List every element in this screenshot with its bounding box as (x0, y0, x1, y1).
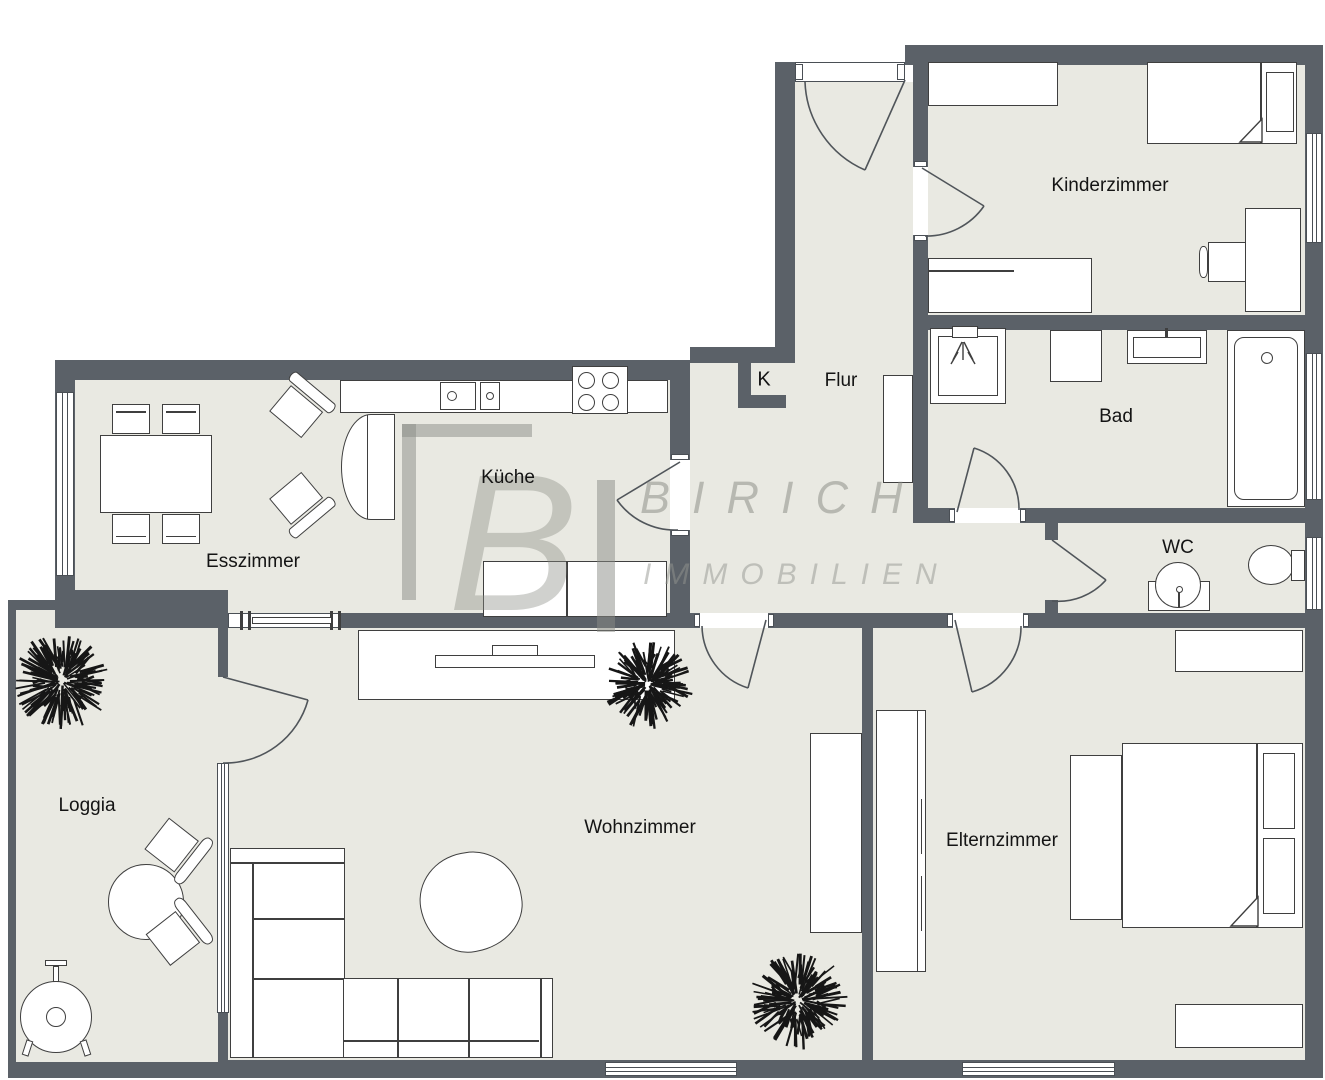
sofa-section-vertical (230, 848, 345, 1058)
wall (55, 590, 228, 628)
wall (775, 62, 795, 363)
desk (1245, 208, 1301, 312)
shelf (928, 62, 1058, 106)
floor-corridor (795, 82, 913, 363)
floor-wc (913, 523, 1305, 613)
room-label-elternzimmer: Elternzimmer (946, 830, 1058, 852)
grill-handle (45, 960, 67, 966)
cabinet (1175, 630, 1303, 672)
wall (913, 65, 928, 167)
dresser (1070, 755, 1122, 920)
door-jamb (671, 530, 689, 536)
desk-chair-back (1199, 246, 1208, 278)
curved-counter (341, 414, 395, 520)
plant (748, 950, 848, 1050)
shelf (928, 258, 1092, 313)
bathtub-drain (1261, 352, 1273, 364)
dining-chair (162, 514, 200, 544)
burner (578, 394, 595, 411)
sofa-section-horizontal (343, 978, 553, 1058)
watermark-subtitle: IMMOBILIEN (643, 558, 950, 592)
grill-center (46, 1007, 66, 1027)
window-wc (1306, 537, 1322, 610)
window-kinderzimmer (1306, 133, 1322, 243)
wall (670, 380, 690, 460)
toilet-tank (1291, 550, 1305, 581)
vanity-basin (1133, 337, 1201, 358)
door-jamb (949, 509, 955, 522)
window-esszimmer (56, 392, 74, 576)
bed-divider (1260, 62, 1262, 144)
window-elternzimmer (962, 1062, 1115, 1076)
wall (738, 395, 786, 408)
door-jamb (914, 161, 927, 167)
room-label-loggia: Loggia (58, 795, 115, 817)
glass-wall-loggia (217, 763, 229, 1013)
kitchen-sink (440, 382, 476, 410)
wall (768, 613, 953, 628)
grill-handle-stem (53, 966, 59, 982)
wc-sink-stem (1178, 592, 1180, 608)
wall (1020, 508, 1305, 523)
door-jamb (768, 614, 774, 627)
wall (1023, 613, 1305, 628)
sideboard-tall (810, 733, 862, 933)
watermark-logo-letter: B (448, 468, 578, 618)
tv-screen (435, 655, 595, 668)
pillow (1266, 72, 1294, 132)
dining-chair (112, 514, 150, 544)
burner (602, 394, 619, 411)
room-label-bad: Bad (1099, 406, 1133, 428)
dining-chair (112, 404, 150, 434)
wall (1045, 600, 1058, 613)
room-label-kinderzimmer: Kinderzimmer (1051, 175, 1168, 197)
watermark-logo-bar-right (597, 480, 615, 632)
wall (218, 1060, 1323, 1078)
plant (12, 631, 112, 731)
door-jamb (1020, 509, 1026, 522)
vanity-tap (1165, 328, 1168, 338)
room-label-wc: WC (1162, 537, 1194, 559)
faucet-dot (486, 392, 494, 400)
door-jamb (947, 614, 953, 627)
floor-plan: B BIRICH IMMOBILIEN Esszimmer Küche Flur… (0, 0, 1325, 1080)
wall (218, 1013, 228, 1060)
sliding-door-bracket (240, 611, 243, 630)
desk-chair (1208, 242, 1246, 282)
door-jamb (897, 64, 905, 80)
wall (218, 628, 228, 677)
washer (1050, 330, 1102, 382)
sliding-door-panel (252, 617, 332, 624)
room-label-esszimmer: Esszimmer (206, 551, 300, 573)
entrance-opening (795, 62, 905, 82)
wall (8, 600, 55, 610)
plant (602, 638, 694, 730)
door-jamb (671, 454, 689, 460)
shower-inner (938, 336, 998, 396)
bed-divider (1256, 743, 1258, 928)
wall (8, 1062, 220, 1078)
dining-chair (162, 404, 200, 434)
watermark-logo-bracket-left (402, 424, 416, 600)
toilet-bowl (1248, 545, 1294, 585)
door-jamb (914, 235, 927, 241)
wardrobe (876, 710, 926, 972)
door-jamb (694, 614, 700, 627)
room-label-kammer: K (757, 369, 770, 392)
window-wohnzimmer (605, 1062, 737, 1076)
wall (1045, 523, 1058, 540)
hall-cabinet (883, 375, 913, 483)
dining-table (100, 435, 212, 513)
sliding-door-bracket (338, 611, 341, 630)
room-label-wohnzimmer: Wohnzimmer (584, 817, 696, 839)
burner (578, 372, 595, 389)
pillow (1263, 838, 1295, 914)
window-bad (1306, 353, 1322, 500)
wall (862, 628, 873, 1060)
burner (602, 372, 619, 389)
room-label-kueche: Küche (481, 467, 535, 489)
room-label-flur: Flur (825, 370, 858, 392)
floor-loggia-door-gap (218, 677, 228, 763)
sliding-door-bracket (248, 611, 251, 630)
watermark-brand: BIRICH (640, 472, 925, 524)
cabinet (1175, 1004, 1303, 1048)
door-jamb (1023, 614, 1029, 627)
door-jamb (795, 64, 803, 80)
sink-drain (447, 391, 457, 401)
pillow (1263, 753, 1295, 829)
shower-head (952, 326, 978, 338)
